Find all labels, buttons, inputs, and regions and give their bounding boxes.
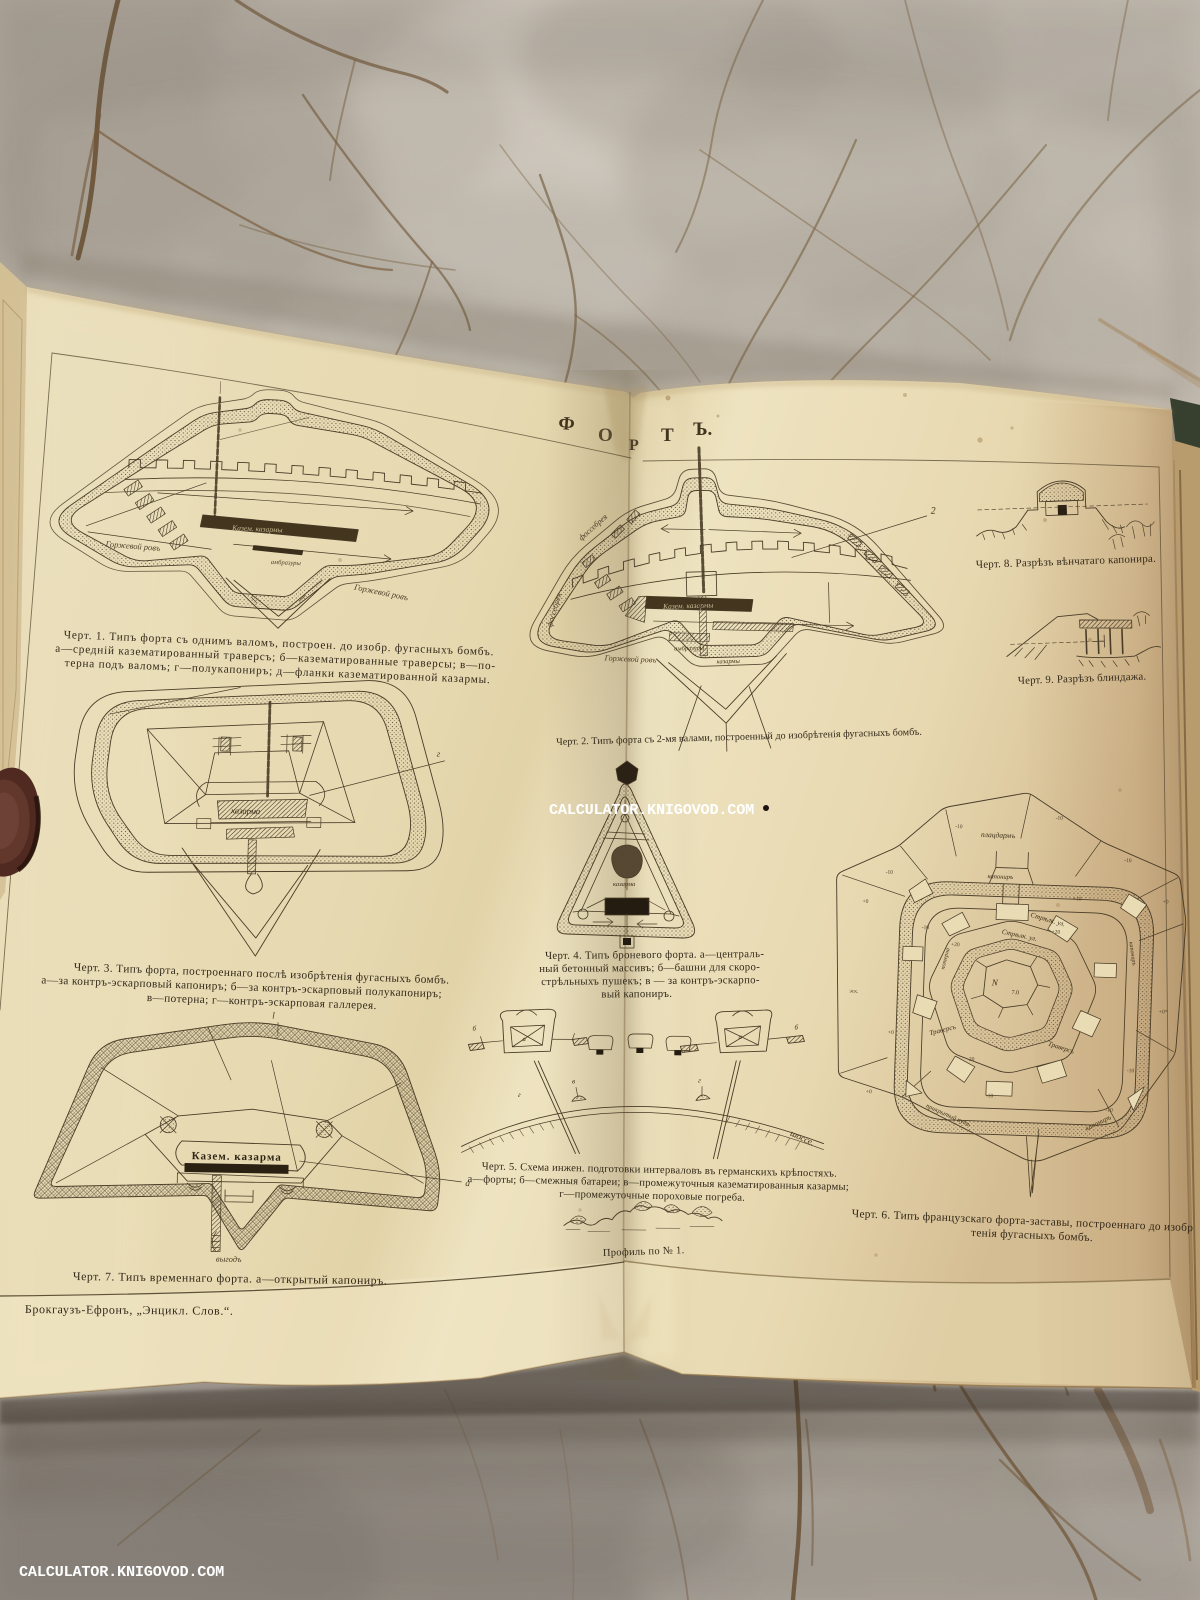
svg-text:казарма: казарма [231, 805, 260, 816]
svg-text:капониръ: капониръ [987, 873, 1014, 881]
svg-text:CALCULATOR.KNIGOVOD.COM: CALCULATOR.KNIGOVOD.COM [19, 1563, 224, 1581]
svg-text:плацдармъ: плацдармъ [981, 830, 1016, 840]
svg-text:ный бетонный массивъ; б—баш: ный бетонный массивъ; б—башни для скоро- [539, 961, 760, 975]
svg-text:Т: Т [661, 425, 674, 446]
svg-text:а: а [522, 1035, 526, 1043]
svg-text:2: 2 [931, 506, 936, 517]
svg-text:Ф: Ф [558, 413, 576, 435]
svg-text:О: О [598, 425, 613, 446]
svg-text:-20: -20 [967, 1057, 975, 1063]
svg-text:б: б [795, 1023, 799, 1031]
svg-text:б: б [472, 1025, 476, 1033]
svg-text:эск.: эск. [849, 988, 859, 994]
svg-text:CALCULATOR.KNIGOVOD.COM: CALCULATOR.KNIGOVOD.COM [549, 801, 754, 819]
svg-text:г: г [518, 1091, 521, 1099]
svg-text:г: г [698, 1077, 701, 1085]
svg-text:Казем. казарма: Казем. казарма [192, 1150, 282, 1164]
svg-text:Черт. 4. Типъ броневого форта.: Черт. 4. Типъ броневого форта. а—централ… [545, 948, 764, 962]
svg-text:амбразуры: амбразуры [271, 559, 302, 567]
svg-text:+20: +20 [1052, 929, 1061, 935]
svg-text:+10: +10 [1073, 896, 1082, 902]
svg-text:-10: -10 [955, 824, 963, 830]
svg-text:-10: -10 [986, 1093, 994, 1099]
svg-text:в: в [572, 1077, 575, 1085]
svg-text:-10: -10 [1105, 1107, 1113, 1113]
svg-text:выгодъ: выгодъ [216, 1254, 242, 1264]
svg-text:+0: +0 [1163, 899, 1169, 905]
svg-text:Брокгаузъ-Ефронъ, „Энцикл. С: Брокгаузъ-Ефронъ, „Энцикл. Слов.“. [25, 1302, 234, 1318]
svg-text:+0*: +0* [1159, 1009, 1168, 1015]
svg-text:-10: -10 [885, 870, 893, 876]
svg-text:а: а [738, 1033, 742, 1041]
svg-text:казарма: казарма [613, 881, 635, 888]
svg-text:Р: Р [629, 437, 639, 454]
svg-text:-10: -10 [922, 925, 930, 931]
svg-text:Ъ.: Ъ. [693, 419, 712, 440]
svg-text:-10: -10 [1055, 815, 1063, 821]
svg-text:+0: +0 [866, 1089, 872, 1095]
svg-text:-10: -10 [1127, 1068, 1135, 1074]
svg-text:амбразуры: амбразуры [674, 645, 705, 653]
svg-text:стрѣльныхъ пушекъ; в — за к: стрѣльныхъ пушекъ; в — за контръ-эскарпо… [541, 974, 760, 988]
svg-text:+0: +0 [888, 1030, 894, 1036]
svg-text:7.0: 7.0 [1011, 990, 1019, 996]
svg-text:вый капониръ.: вый капониръ. [601, 988, 672, 1001]
svg-text:+0: +0 [862, 899, 868, 905]
svg-text:+20: +20 [951, 942, 960, 948]
svg-text:-10: -10 [1124, 858, 1132, 864]
svg-text:казармы: казармы [716, 658, 740, 666]
